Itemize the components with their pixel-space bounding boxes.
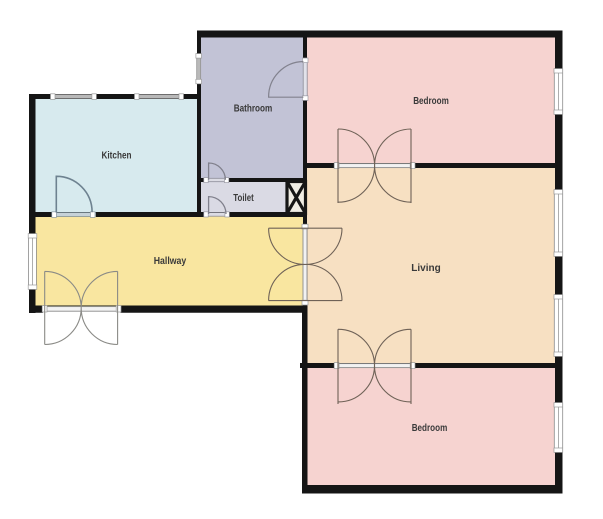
svg-text:Bedroom: Bedroom xyxy=(412,423,448,434)
svg-text:Toilet: Toilet xyxy=(233,193,254,204)
svg-text:Bathroom: Bathroom xyxy=(234,104,273,115)
svg-text:Bedroom: Bedroom xyxy=(413,96,449,107)
svg-text:Living: Living xyxy=(411,263,441,274)
svg-text:Hallway: Hallway xyxy=(154,256,187,267)
svg-text:Kitchen: Kitchen xyxy=(102,151,132,162)
